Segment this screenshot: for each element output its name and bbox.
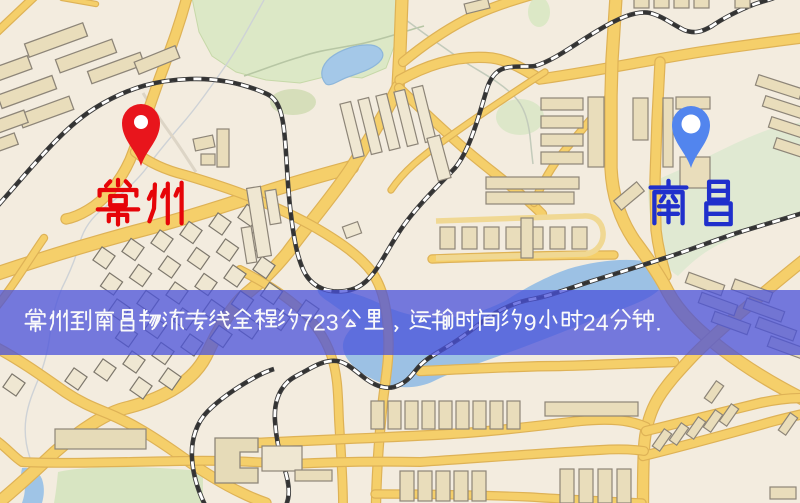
svg-text:723: 723 [300,310,339,336]
svg-text:.: . [655,310,661,336]
svg-text:9: 9 [524,310,537,336]
svg-text:24: 24 [583,310,609,336]
